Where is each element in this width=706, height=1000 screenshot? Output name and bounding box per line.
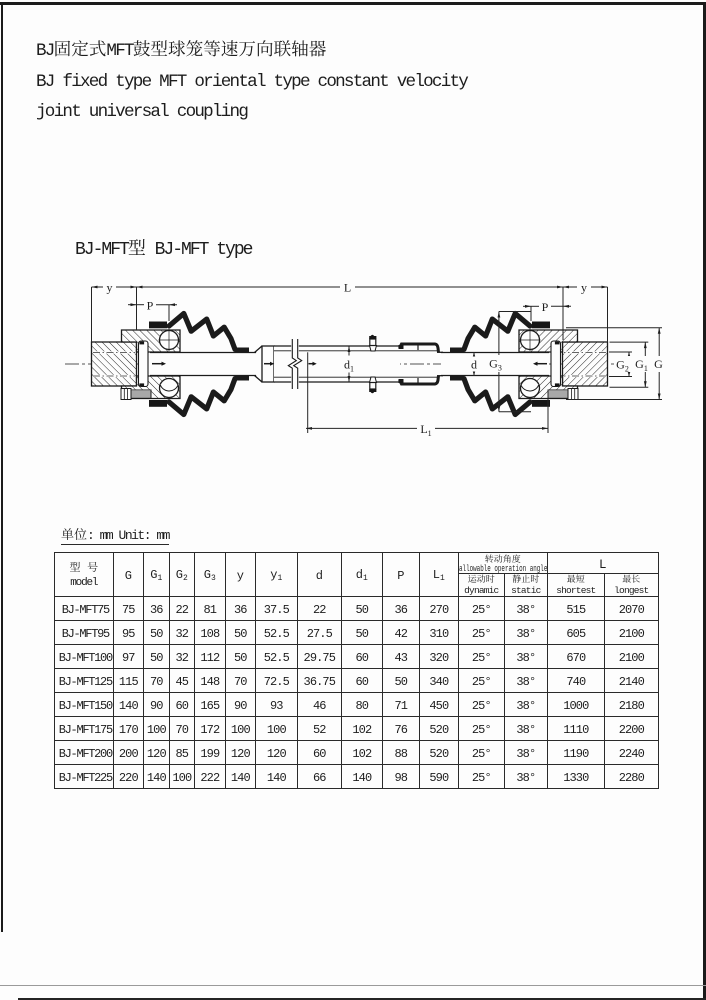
- svg-text:G: G: [654, 357, 663, 371]
- svg-text:y: y: [581, 281, 587, 295]
- svg-text:L1: L1: [420, 422, 431, 438]
- svg-text:y: y: [107, 281, 113, 295]
- svg-text:P: P: [542, 300, 549, 314]
- svg-text:L: L: [344, 281, 351, 295]
- svg-text:d: d: [471, 358, 477, 372]
- svg-text:P: P: [147, 299, 154, 313]
